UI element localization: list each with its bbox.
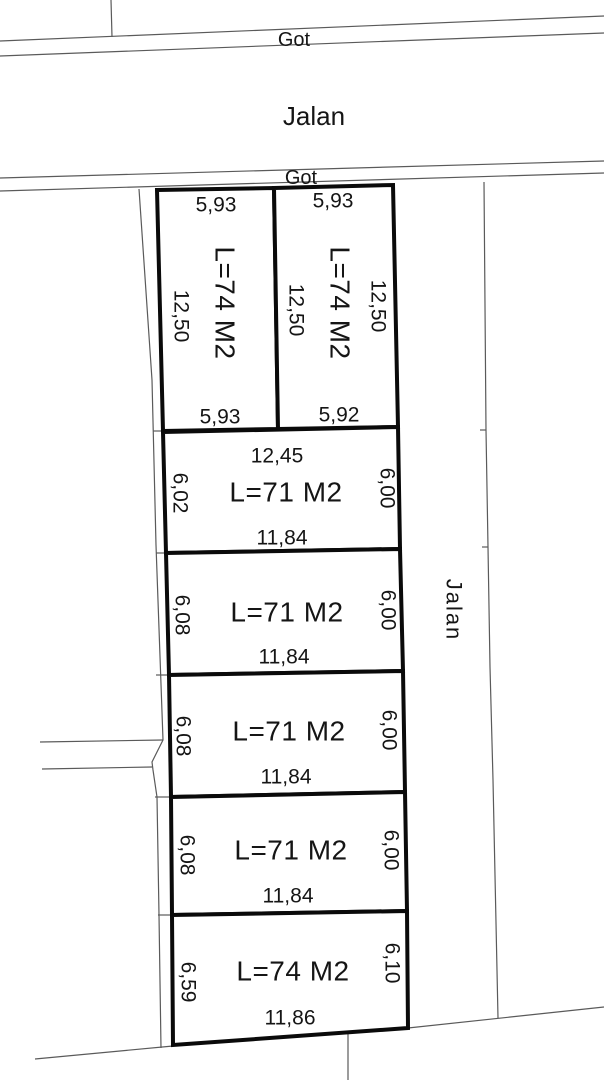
- plot-3-depth-right: 6,00: [376, 468, 399, 509]
- left-neighbor-stub-lower: [42, 767, 152, 769]
- jalan-right-label: Jalan: [442, 579, 467, 642]
- plot-5-depth-left: 6,08: [172, 716, 195, 757]
- plot-1-width-bottom: 5,93: [200, 406, 241, 429]
- plot-1-width-top: 5,93: [196, 194, 237, 217]
- bottom-right-boundary: [408, 1007, 604, 1028]
- site-plan-svg: Got Jalan Got Jalan 5,93 12,50 L=74 M2 5…: [0, 0, 604, 1080]
- plot-2-depth-left: 12,50: [285, 284, 308, 337]
- plot-7-depth-right: 6,10: [381, 943, 404, 984]
- plot-4-area: L=71 M2: [230, 597, 343, 628]
- plot-3-area: L=71 M2: [229, 477, 342, 508]
- plot-3-depth-left: 6,02: [169, 473, 192, 514]
- plot-7-area: L=74 M2: [236, 956, 349, 987]
- plot-5-area: L=71 M2: [232, 716, 345, 747]
- jalan-top-label: Jalan: [283, 101, 345, 131]
- got-top-label: Got: [278, 29, 311, 51]
- got-mid-label: Got: [285, 167, 318, 189]
- bottom-left-boundary: [35, 1046, 173, 1059]
- right-road-boundary: [484, 182, 498, 1018]
- plot-6-depth-left: 6,08: [176, 835, 199, 876]
- plot-3-width-bottom: 11,84: [257, 527, 308, 550]
- plot-4-width-bottom: 11,84: [259, 646, 310, 669]
- plot-5-width-bottom: 11,84: [261, 766, 312, 789]
- plot-2-area: L=74 M2: [325, 246, 356, 359]
- north-boundary-line: [111, 0, 112, 37]
- plot-6-depth-right: 6,00: [380, 830, 403, 871]
- site-plan-page: Got Jalan Got Jalan 5,93 12,50 L=74 M2 5…: [0, 0, 604, 1080]
- plot-2-depth-right: 12,50: [367, 280, 390, 333]
- plot-4-depth-left: 6,08: [171, 595, 194, 636]
- plot-4-depth-right: 6,00: [377, 590, 400, 631]
- left-neighbor-stub-upper: [40, 740, 163, 742]
- plot-3-width-top: 12,45: [251, 445, 304, 468]
- plot-7-depth-left: 6,59: [177, 962, 200, 1003]
- plot-1-area: L=74 M2: [210, 246, 241, 359]
- plot-6-area: L=71 M2: [234, 835, 347, 866]
- plot-5-depth-right: 6,00: [378, 710, 401, 751]
- plot-1-depth-left: 12,50: [170, 290, 193, 343]
- plot-7-width-bottom: 11,86: [265, 1007, 316, 1030]
- plot-2-width-top: 5,93: [313, 190, 354, 213]
- plot-2-width-bottom: 5,92: [319, 404, 360, 427]
- plot-6-width-bottom: 11,84: [263, 885, 314, 908]
